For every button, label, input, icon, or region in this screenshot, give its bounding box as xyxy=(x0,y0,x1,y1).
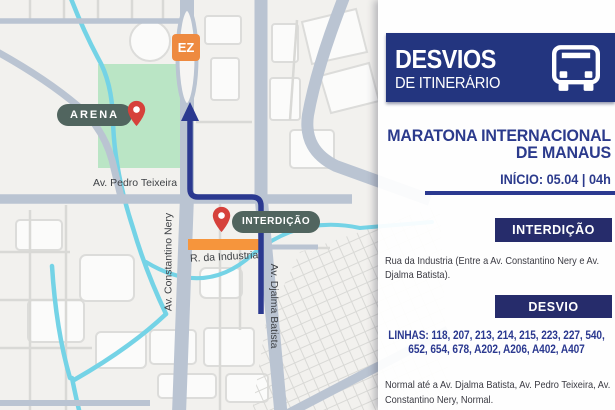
header-title: DESVIOS xyxy=(395,46,496,72)
bus-icon xyxy=(549,44,603,92)
divider-rule xyxy=(425,191,615,195)
arena-location-pin-icon xyxy=(127,100,146,127)
interdicao-pill: INTERDIÇÃO xyxy=(232,211,320,233)
header-subtitle: DE ITINERÁRIO xyxy=(395,76,501,92)
street-label-djalma-batista: Av. Djalma Batista xyxy=(266,251,280,361)
event-title-line2: DE MANAUS xyxy=(387,144,611,161)
header-box: DESVIOS DE ITINERÁRIO xyxy=(386,33,615,102)
bus-lines-list: LINHAS: 118, 207, 213, 214, 215, 223, 22… xyxy=(380,329,613,358)
desvio-badge: DESVIO xyxy=(495,295,612,318)
event-start-time: INÍCIO: 05.04 | 04h xyxy=(500,172,611,187)
event-title: MARATONA INTERNACIONAL DE MANAUS xyxy=(387,127,611,161)
street-label-pedro-teixeira: Av. Pedro Teixeira xyxy=(93,177,177,189)
info-panel: DESVIOS DE ITINERÁRIO MARATONA INTERNACI… xyxy=(378,0,615,410)
street-label-constantino-nery: Av. Constantino Nery xyxy=(163,205,177,320)
event-title-line1: MARATONA INTERNACIONAL xyxy=(387,127,611,144)
arena-pill: ARENA xyxy=(57,104,132,126)
interdicao-description: Rua da Industria (Entre a Av. Constantin… xyxy=(385,254,615,282)
closure-bar xyxy=(188,239,261,250)
interdicao-location-pin-icon xyxy=(212,206,231,233)
interdicao-badge: INTERDIÇÃO xyxy=(495,218,612,242)
ez-marker: EZ xyxy=(172,34,200,61)
header-text: DESVIOS DE ITINERÁRIO xyxy=(395,46,507,92)
detour-infographic: EZ ARENA INTERDIÇÃO Av. Pedro Teixeira A… xyxy=(0,0,615,410)
detour-description: Normal até a Av. Djalma Batista, Av. Ped… xyxy=(385,378,615,408)
